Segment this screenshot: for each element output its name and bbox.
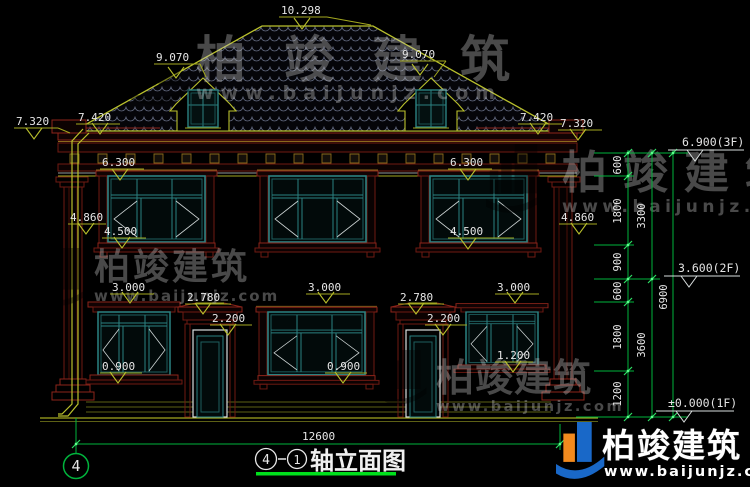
window-1f-center [254,306,379,389]
title-text: 轴立面图 [310,447,406,475]
elevation-drawing: 柏竣建筑 www.baijunjz.com 柏竣建筑 www.baijunjz.… [0,0,750,487]
watermark-url: www.baijunjz.com [436,399,624,415]
watermark-url: www.baijunjz.com [196,82,502,104]
svg-text:4.860: 4.860 [70,211,103,224]
dim-ridge: 10.298 [279,4,371,29]
svg-text:4.500: 4.500 [450,225,483,238]
level-2f: 3.600(2F) [664,261,740,287]
svg-text:7.320: 7.320 [560,117,593,130]
axis-bubble-4: 4 [64,454,89,479]
svg-text:9.070: 9.070 [402,48,435,61]
brand-name: 柏竣建筑 [602,426,742,465]
window-2f-center [255,170,380,257]
window-2f-left [94,170,219,257]
title-axis-end: 1 [293,453,300,467]
chain-900: 900 [612,253,624,272]
title-underline [256,472,396,476]
svg-text:7.320: 7.320 [16,115,49,128]
chain-6900: 6900 [658,284,670,309]
svg-text:7.420: 7.420 [78,111,111,124]
level-1f: ±0.000(1F) [656,396,737,422]
svg-text:2.200: 2.200 [427,312,460,325]
watermark-brand: 柏竣建筑 [436,356,592,400]
chain-1800a: 1800 [612,198,624,223]
svg-text:6.900(3F): 6.900(3F) [682,135,744,149]
watermark-brand: 柏竣建筑 [562,146,750,199]
svg-text:6.300: 6.300 [102,156,135,169]
svg-text:2.780: 2.780 [400,291,433,304]
svg-text:3.000: 3.000 [497,281,530,294]
dim-win1-head-center: 3.000 [306,281,350,303]
svg-text:1.200: 1.200 [497,349,530,362]
brand-logo-footer: 柏竣建筑 www.baijunjz.com [556,422,750,480]
svg-text:3.000: 3.000 [308,281,341,294]
svg-text:4.500: 4.500 [104,225,137,238]
chain-600b: 600 [612,282,624,301]
chain-600a: 600 [612,156,624,175]
svg-text:6.300: 6.300 [450,156,483,169]
svg-text:10.298: 10.298 [281,4,321,17]
chain-3600: 3600 [636,332,648,357]
axis-bubble-label: 4 [71,457,80,475]
watermark-brand: 柏竣建筑 [196,31,548,89]
chain-1200: 1200 [612,381,624,406]
svg-text:0.900: 0.900 [102,360,135,373]
svg-text:2.200: 2.200 [212,312,245,325]
svg-text:4.860: 4.860 [561,211,594,224]
cad-elevation-screenshot: 柏竣建筑 www.baijunjz.com 柏竣建筑 www.baijunjz.… [0,0,750,487]
svg-text:0.900: 0.900 [327,360,360,373]
dim-total-width: 12600 [302,430,335,443]
drawing-title: 4 1 轴立面图 [256,447,407,476]
svg-text:3.000: 3.000 [112,281,145,294]
watermark-mid-left: 柏竣建筑 www.baijunjz.com [38,247,279,306]
svg-text:3.600(2F): 3.600(2F) [678,261,740,275]
svg-text:2.780: 2.780 [187,291,220,304]
svg-text:7.420: 7.420 [520,111,553,124]
svg-text:±0.000(1F): ±0.000(1F) [668,396,737,410]
chain-1800b: 1800 [612,324,624,349]
dim-win1-head-right: 3.000 [495,281,539,303]
brand-url: www.baijunjz.com [604,464,750,480]
svg-text:9.070: 9.070 [156,51,189,64]
chain-3300: 3300 [636,203,648,228]
title-axis-start: 4 [262,453,270,468]
